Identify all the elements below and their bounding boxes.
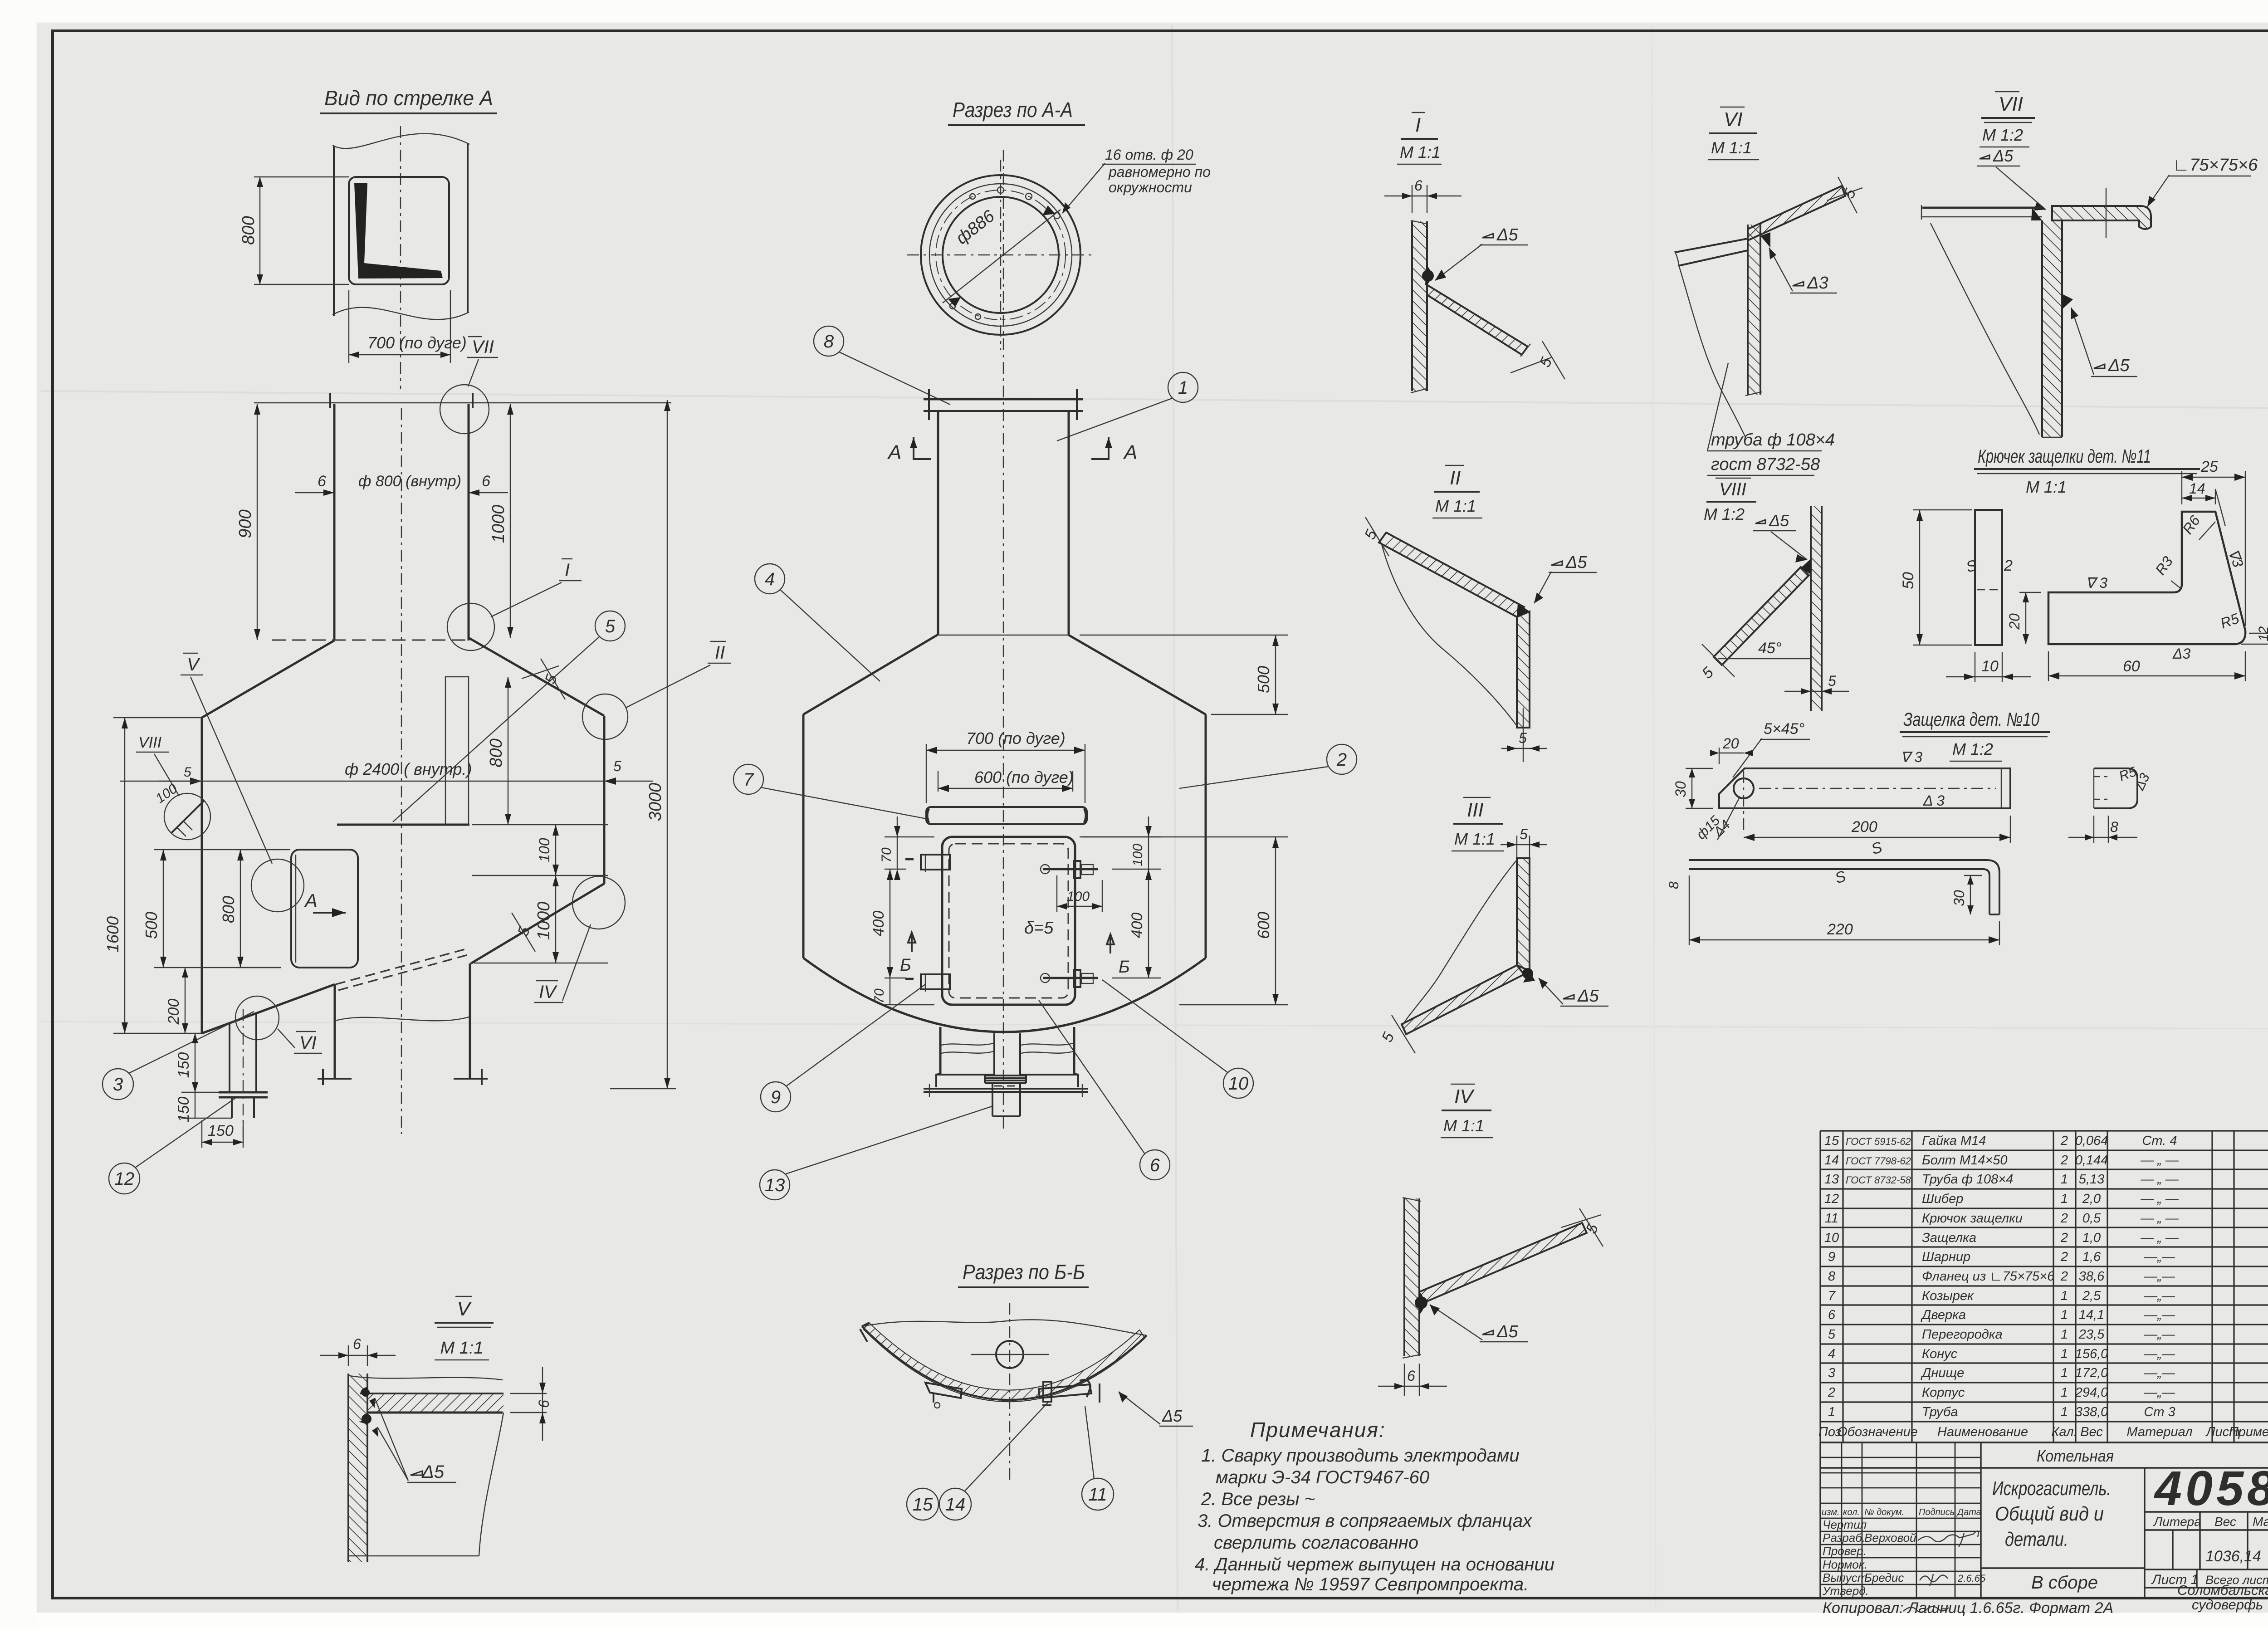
svg-text:детали.: детали. xyxy=(2005,1528,2068,1550)
svg-text:Верховой: Верховой xyxy=(1864,1531,1916,1545)
svg-text:№ докум.: № докум. xyxy=(1864,1507,1904,1517)
svg-text:Литера: Литера xyxy=(2153,1515,2201,1529)
svg-text:Вес: Вес xyxy=(2214,1515,2236,1529)
svg-text:В сборе: В сборе xyxy=(2031,1573,2098,1593)
svg-text:Котельная: Котельная xyxy=(2037,1447,2114,1465)
svg-text:Дата: Дата xyxy=(1956,1507,1981,1517)
svg-text:Бредис: Бредис xyxy=(1864,1571,1904,1584)
svg-text:Выпуст.: Выпуст. xyxy=(1823,1571,1870,1584)
svg-text:кол.: кол. xyxy=(1843,1507,1860,1517)
svg-text:Нормок.: Нормок. xyxy=(1823,1558,1867,1571)
svg-text:Разраб.: Разраб. xyxy=(1823,1531,1865,1545)
svg-text:Чертил: Чертил xyxy=(1823,1518,1867,1531)
svg-text:Провер.: Провер. xyxy=(1823,1544,1867,1558)
svg-text:2.6.65: 2.6.65 xyxy=(1957,1573,1986,1584)
svg-text:изм.: изм. xyxy=(1822,1507,1839,1517)
svg-text:Подпись: Подпись xyxy=(1919,1507,1955,1517)
svg-text:Утверд.: Утверд. xyxy=(1822,1584,1869,1598)
svg-text:4058: 4058 xyxy=(2154,1461,2268,1516)
svg-text:Соломбальская: Соломбальская xyxy=(2177,1582,2268,1598)
svg-text:Общий вид и: Общий вид и xyxy=(1995,1503,2104,1525)
svg-text:Искрогаситель.: Искрогаситель. xyxy=(1992,1477,2111,1500)
svg-text:судоверфь: судоверфь xyxy=(2192,1597,2263,1613)
svg-text:Копировал: Лашниц 1.6.: Копировал: Лашниц 1.6.65г. Формат 2А xyxy=(1823,1599,2113,1617)
svg-text:1036,14: 1036,14 xyxy=(2205,1548,2261,1565)
svg-text:Масшт.: Масшт. xyxy=(2253,1515,2268,1529)
